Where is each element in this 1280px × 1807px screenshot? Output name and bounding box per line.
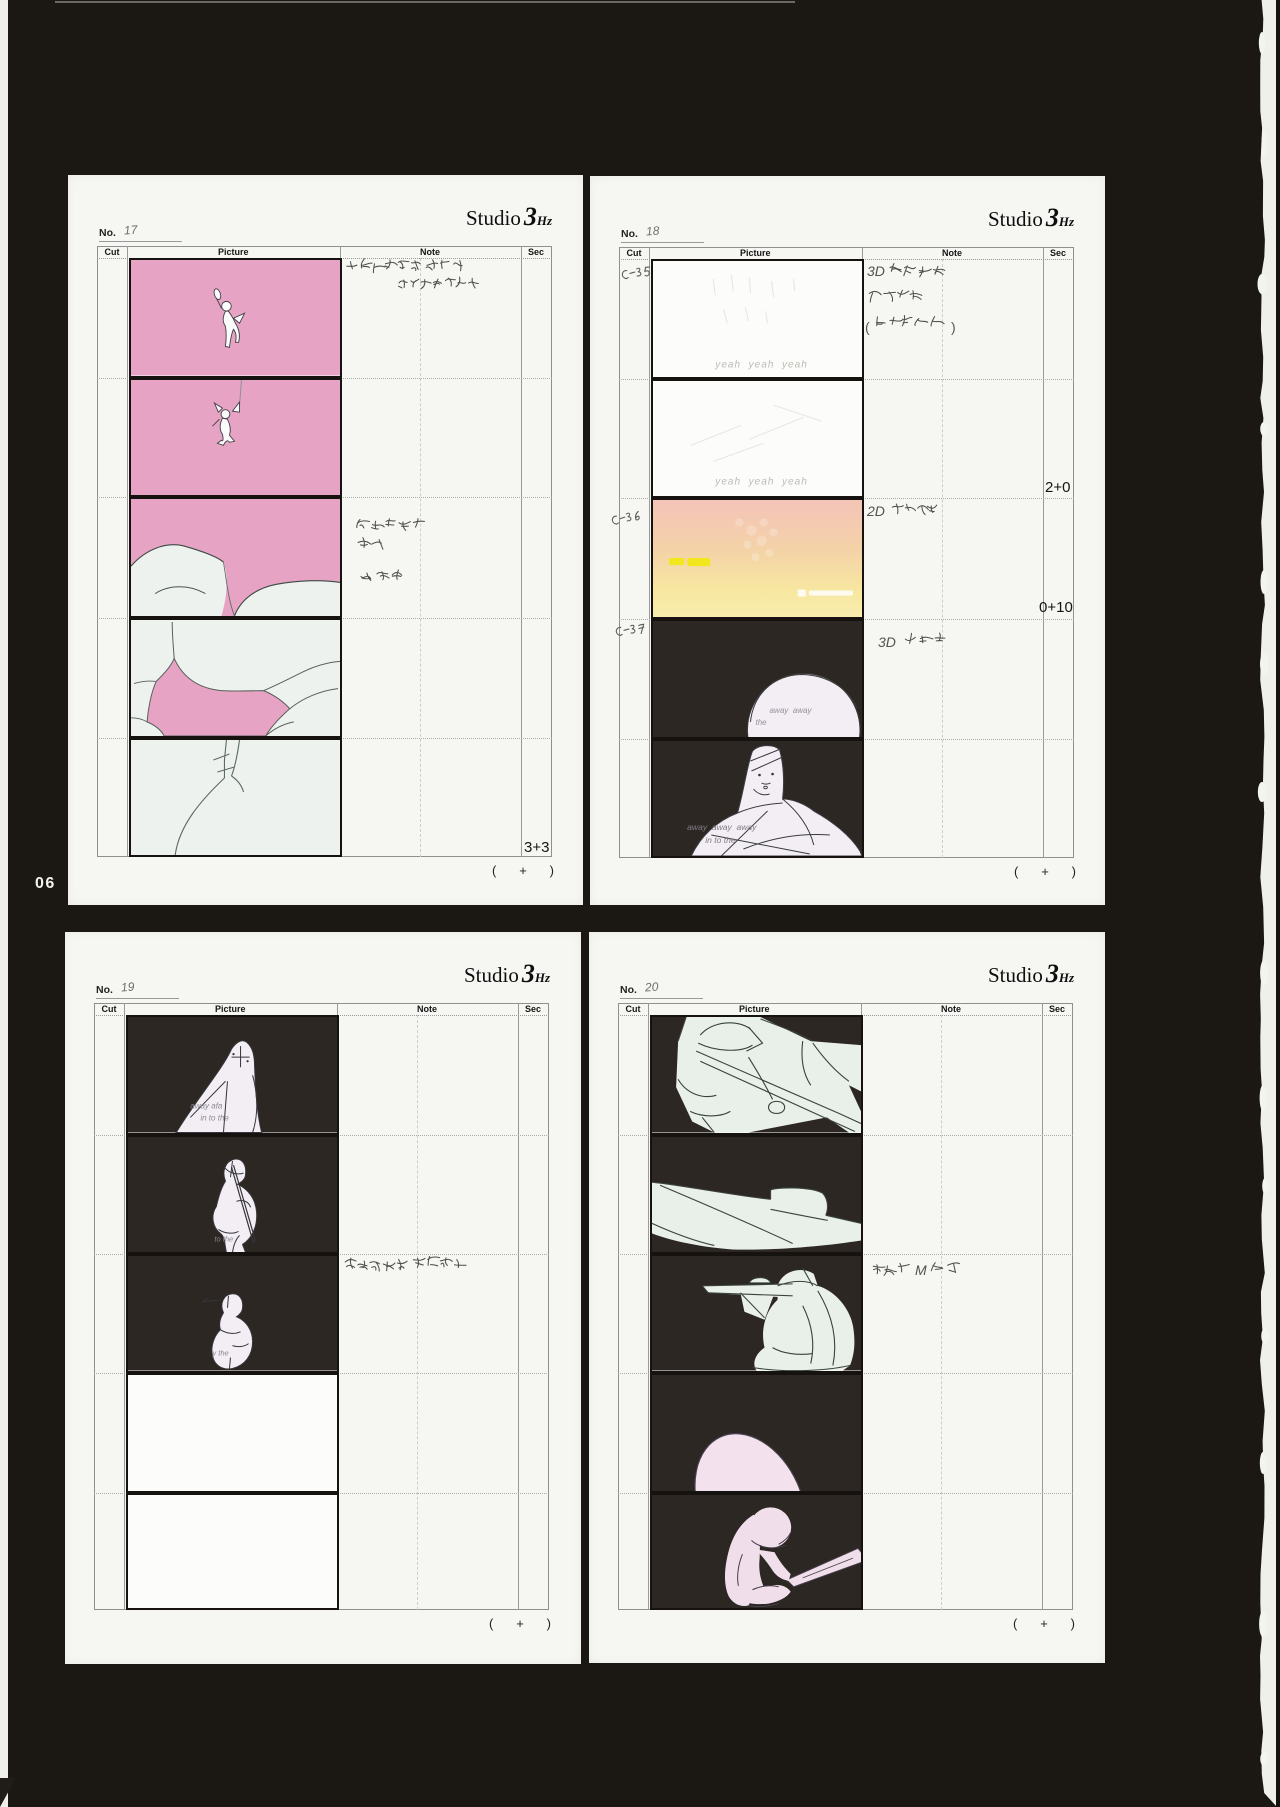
svg-text:in to the: in to the: [705, 835, 736, 845]
svg-text:to the: to the: [214, 1234, 233, 1243]
svg-text:yeah yeah yeah: yeah yeah yeah: [714, 476, 808, 487]
svg-text:in to the: in to the: [200, 1113, 229, 1122]
svg-text:the: the: [755, 718, 767, 727]
svg-text:away away away: away away away: [687, 822, 757, 832]
svg-text:away away: away away: [770, 706, 813, 715]
svg-text:y the: y the: [211, 1349, 228, 1358]
svg-text:3D: 3D: [867, 263, 885, 279]
svg-text:2D: 2D: [866, 503, 885, 519]
svg-text:3D: 3D: [878, 634, 896, 650]
svg-text:away afa: away afa: [190, 1101, 223, 1110]
svg-text:M: M: [915, 1262, 927, 1278]
svg-text:): ): [951, 319, 956, 335]
svg-text:(: (: [865, 319, 870, 335]
svg-text:yeah yeah yeah: yeah yeah yeah: [714, 359, 808, 370]
